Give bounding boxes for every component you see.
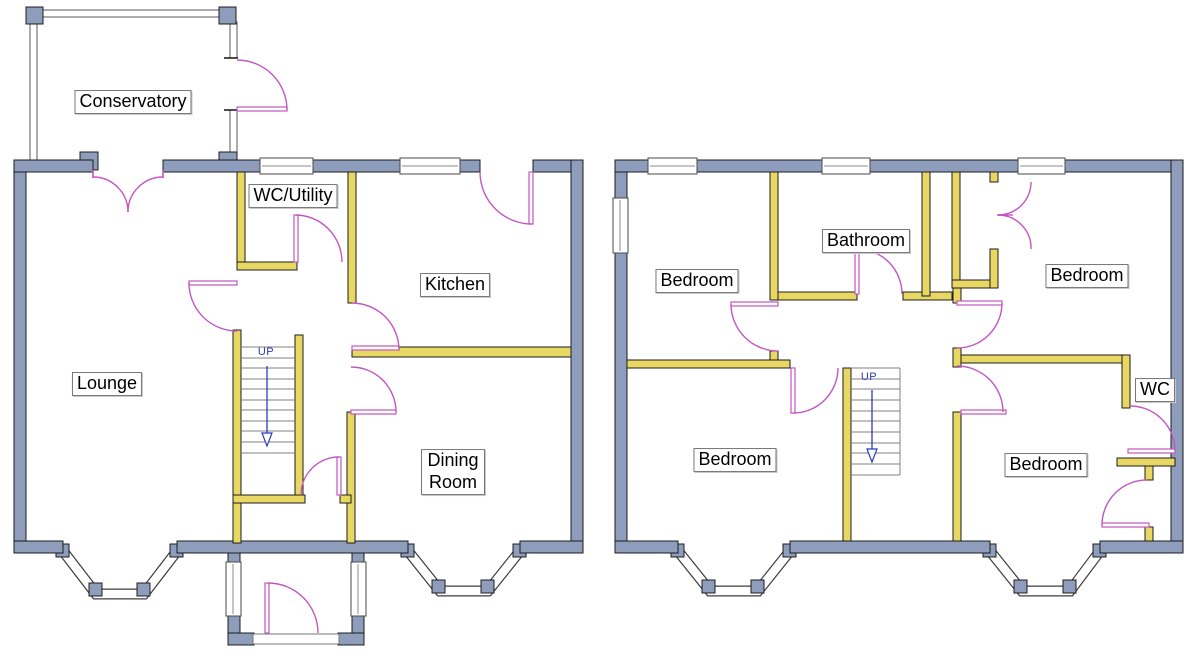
porch (226, 553, 366, 645)
conservatory-glazing-left (30, 22, 37, 160)
door-swing-arc (128, 177, 163, 212)
wall-exterior-top (313, 160, 400, 172)
door-swing-arc (268, 583, 318, 633)
bay-post (481, 580, 494, 593)
door-bedroom-front-right (957, 301, 1002, 348)
wall-stairs-bottom (233, 495, 305, 503)
wall-hall-dining (347, 412, 355, 543)
bay-window-glazing (408, 551, 520, 591)
door-swing-arc (352, 303, 399, 350)
bay-window-lounge (56, 544, 183, 596)
wall-stairs-left (843, 368, 851, 541)
wall-wc-bottom (1117, 458, 1175, 466)
door-leaf (1128, 449, 1175, 453)
wall-exterior-top (615, 160, 648, 172)
room-label-bathroom: Bathroom (822, 229, 910, 253)
stair-up-label-first: UP (861, 371, 877, 383)
door-leaf (961, 410, 1006, 414)
door-leaf (237, 107, 287, 111)
bay-window-glazing (678, 551, 790, 591)
wall-closet-right (990, 249, 998, 288)
door-swing-arc (480, 172, 532, 224)
wall-exterior-top (1065, 160, 1183, 172)
door-swing-arc (237, 60, 287, 110)
door-swing-arc (189, 283, 237, 331)
room-label-bedroom-front-left: Bedroom (655, 269, 738, 293)
wall-stairs-right (953, 412, 961, 541)
wall-bedroom-br-top (961, 355, 1122, 363)
door-bedroom-front-left (731, 302, 778, 351)
conservatory-post (26, 7, 43, 24)
room-label-wc-utility: WC/Utility (249, 184, 338, 208)
first-floor-plan (613, 158, 1183, 593)
door-wc (1128, 406, 1175, 453)
room-label-conservatory: Conservatory (74, 90, 191, 114)
door-leaf (337, 457, 341, 495)
stair-direction-arrowhead (262, 433, 272, 446)
room-label-dining-room: Dining Room (421, 449, 485, 495)
door-leaf (294, 215, 298, 262)
wall-bathroom-right (922, 172, 930, 296)
door-leaf (791, 368, 795, 413)
conservatory-glazing-right-upper (230, 22, 237, 58)
porch-wall-bottom (228, 633, 254, 645)
door-leaf (265, 583, 269, 633)
bay-post (751, 580, 764, 593)
door-swing-arc (296, 215, 342, 262)
wall-wc-utility-bottom (237, 262, 297, 270)
door-swing-arc (793, 368, 838, 413)
wall-landing-right (953, 348, 961, 367)
bifold-closet-doors (997, 182, 1031, 249)
door-leaf (855, 247, 859, 294)
door-bedroom-back-left (791, 368, 838, 413)
door-swing-arc (1130, 406, 1175, 451)
wall-bedroom-fl-right (770, 172, 778, 300)
bay-window-bedroom-back-left (671, 544, 796, 593)
wall-exterior-left (14, 160, 26, 553)
door-leaf (352, 346, 399, 350)
door-understairs (301, 457, 341, 495)
wall-exterior-top (163, 160, 260, 172)
bay-post (432, 580, 445, 593)
room-label-kitchen: Kitchen (420, 273, 490, 297)
floor-plan-canvas: Conservatory WC/Utility Kitchen Lounge D… (0, 0, 1200, 656)
bay-post (89, 583, 102, 596)
door-swing-arc (998, 182, 1031, 215)
porch-wall-bottom (338, 633, 364, 645)
wall-exterior-right (571, 160, 583, 553)
staircase-first (851, 368, 900, 475)
door-swing-arc (1102, 480, 1147, 525)
wall-exterior-right (1171, 160, 1183, 553)
front-door (265, 583, 318, 633)
wall-exterior-bottom (790, 541, 990, 553)
door-dining (351, 367, 396, 414)
wall-stub (990, 172, 998, 182)
room-label-bedroom-back-left: Bedroom (693, 448, 776, 472)
door-swing-arc (731, 304, 778, 351)
door-kitchen-back (480, 172, 533, 224)
wall-stairs-right (295, 335, 303, 497)
bay-window-glazing (63, 551, 177, 594)
bay-post (1063, 580, 1076, 593)
wall-exterior-bottom (177, 541, 408, 553)
room-label-wc: WC (1135, 378, 1175, 402)
door-leaf (957, 301, 1002, 305)
wall-exterior-bottom (1100, 541, 1183, 553)
front-door-threshold (253, 634, 339, 644)
door-leaf (529, 172, 533, 224)
door-leaf (1102, 523, 1149, 527)
wall-kitchen-left (348, 172, 356, 303)
room-label-lounge: Lounge (72, 372, 142, 396)
wall-stub (340, 495, 351, 503)
bay-window-glazing (990, 551, 1100, 591)
conservatory-glazing-right-lower (230, 110, 237, 154)
wall-wc-left (1122, 355, 1130, 408)
stair-up-label-ground: UP (258, 346, 274, 358)
stair-direction-arrowhead (867, 449, 877, 462)
bay-post (137, 583, 150, 596)
wall-cupboard (1145, 466, 1153, 480)
room-label-bedroom-back-right: Bedroom (1004, 453, 1087, 477)
door-swing-arc (957, 366, 1003, 412)
wall-bedroom-bl-top (627, 360, 790, 368)
wall-exterior-bottom (615, 541, 678, 553)
door-swing-arc (998, 215, 1031, 249)
room-label-bedroom-front-right: Bedroom (1045, 264, 1128, 288)
wall-exterior-bottom (520, 541, 583, 553)
french-doors-conservatory (93, 170, 163, 212)
wall-exterior-top (14, 160, 93, 172)
bay-post (1014, 580, 1027, 593)
wall-wc-utility-left (237, 172, 245, 270)
wall-closet-left (952, 172, 960, 288)
staircase-treads (851, 368, 900, 475)
conservatory-exterior-door (224, 58, 287, 111)
door-cupboard (1102, 480, 1149, 527)
conservatory-structure (26, 7, 287, 170)
wall-stairs-left (233, 330, 241, 543)
door-leaf (351, 410, 396, 414)
door-swing-arc (301, 457, 339, 495)
door-swing-arc (857, 249, 902, 294)
door-swing-arc (351, 367, 396, 412)
door-leaf (189, 281, 237, 285)
door-bathroom (855, 247, 902, 294)
staircase-ground (241, 347, 295, 453)
wall-exterior-top (460, 160, 480, 172)
wall-exterior-top (697, 160, 822, 172)
door-kitchen (352, 303, 399, 350)
interior-walls-first (627, 172, 1175, 541)
bay-post (702, 580, 715, 593)
door-wc-utility (294, 215, 342, 262)
door-lounge (189, 281, 237, 331)
wall-bathroom-bottom (778, 292, 857, 300)
conservatory-post (219, 7, 236, 24)
door-swing-arc (93, 177, 128, 212)
door-swing-arc (957, 303, 1002, 348)
doors-ground (93, 170, 533, 495)
conservatory-glazing-top (42, 10, 221, 17)
bay-window-bedroom-back-right (983, 544, 1106, 593)
wall-cupboard (1145, 527, 1153, 541)
door-bedroom-back-right (957, 366, 1006, 414)
wall-exterior-top (870, 160, 1018, 172)
wall-exterior-bottom (14, 541, 63, 553)
door-leaf (731, 302, 778, 306)
bay-window-dining (401, 544, 526, 593)
